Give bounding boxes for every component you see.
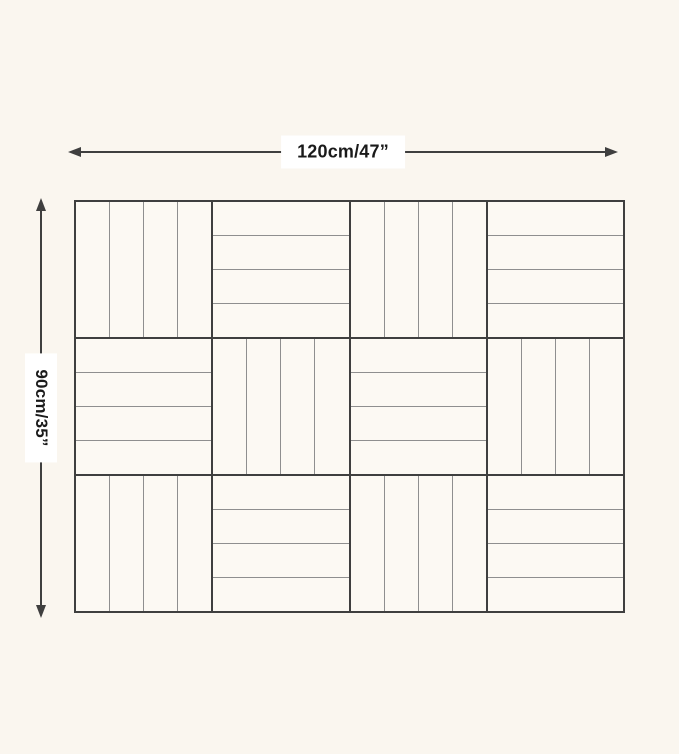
width-label: 120cm/47” <box>281 136 405 169</box>
plank <box>351 476 384 611</box>
tile-grid <box>74 200 625 613</box>
plank <box>488 543 623 577</box>
plank <box>213 303 348 337</box>
deck-tile-vertical <box>212 338 349 475</box>
deck-tile-vertical <box>350 475 487 612</box>
plank <box>351 440 486 474</box>
deck-tile-vertical <box>487 338 624 475</box>
plank <box>555 339 589 474</box>
plank <box>213 269 348 303</box>
plank <box>384 202 418 337</box>
arrow-down-icon <box>36 605 46 618</box>
plank <box>488 202 623 235</box>
plank <box>589 339 623 474</box>
arrow-right-icon <box>605 147 618 157</box>
plank <box>109 202 143 337</box>
arrow-left-icon <box>68 147 81 157</box>
plank <box>488 269 623 303</box>
plank <box>314 339 348 474</box>
deck-tile-horizontal <box>350 338 487 475</box>
plank <box>213 509 348 543</box>
plank <box>177 202 211 337</box>
plank <box>521 339 555 474</box>
plank <box>213 476 348 509</box>
deck-tile-horizontal <box>487 475 624 612</box>
deck-tile-vertical <box>75 201 212 338</box>
plank <box>76 406 211 440</box>
plank <box>213 577 348 611</box>
plank <box>351 372 486 406</box>
plank <box>488 509 623 543</box>
deck-tile-vertical <box>75 475 212 612</box>
plank <box>351 339 486 372</box>
plank <box>418 476 452 611</box>
plank <box>488 303 623 337</box>
plank <box>488 339 521 474</box>
deck-tile-horizontal <box>212 475 349 612</box>
height-label: 90cm/35” <box>25 353 57 462</box>
plank <box>76 339 211 372</box>
arrow-up-icon <box>36 198 46 211</box>
plank <box>143 202 177 337</box>
height-dimension: 90cm/35” <box>29 198 53 618</box>
plank <box>351 202 384 337</box>
plank <box>213 339 246 474</box>
plank <box>177 476 211 611</box>
plank <box>143 476 177 611</box>
deck-tile-horizontal <box>75 338 212 475</box>
plank <box>213 543 348 577</box>
plank <box>452 202 486 337</box>
plank <box>452 476 486 611</box>
plank <box>76 202 109 337</box>
plank <box>418 202 452 337</box>
deck-tile-horizontal <box>212 201 349 338</box>
plank <box>280 339 314 474</box>
plank <box>384 476 418 611</box>
plank <box>76 476 109 611</box>
diagram-canvas: 120cm/47” 90cm/35” <box>0 0 679 754</box>
deck-tile-horizontal <box>487 201 624 338</box>
plank <box>76 440 211 474</box>
plank <box>213 202 348 235</box>
plank <box>351 406 486 440</box>
plank <box>488 577 623 611</box>
plank <box>213 235 348 269</box>
plank <box>109 476 143 611</box>
plank <box>488 476 623 509</box>
deck-tile-vertical <box>350 201 487 338</box>
width-dimension: 120cm/47” <box>68 140 618 164</box>
plank <box>246 339 280 474</box>
plank <box>76 372 211 406</box>
plank <box>488 235 623 269</box>
